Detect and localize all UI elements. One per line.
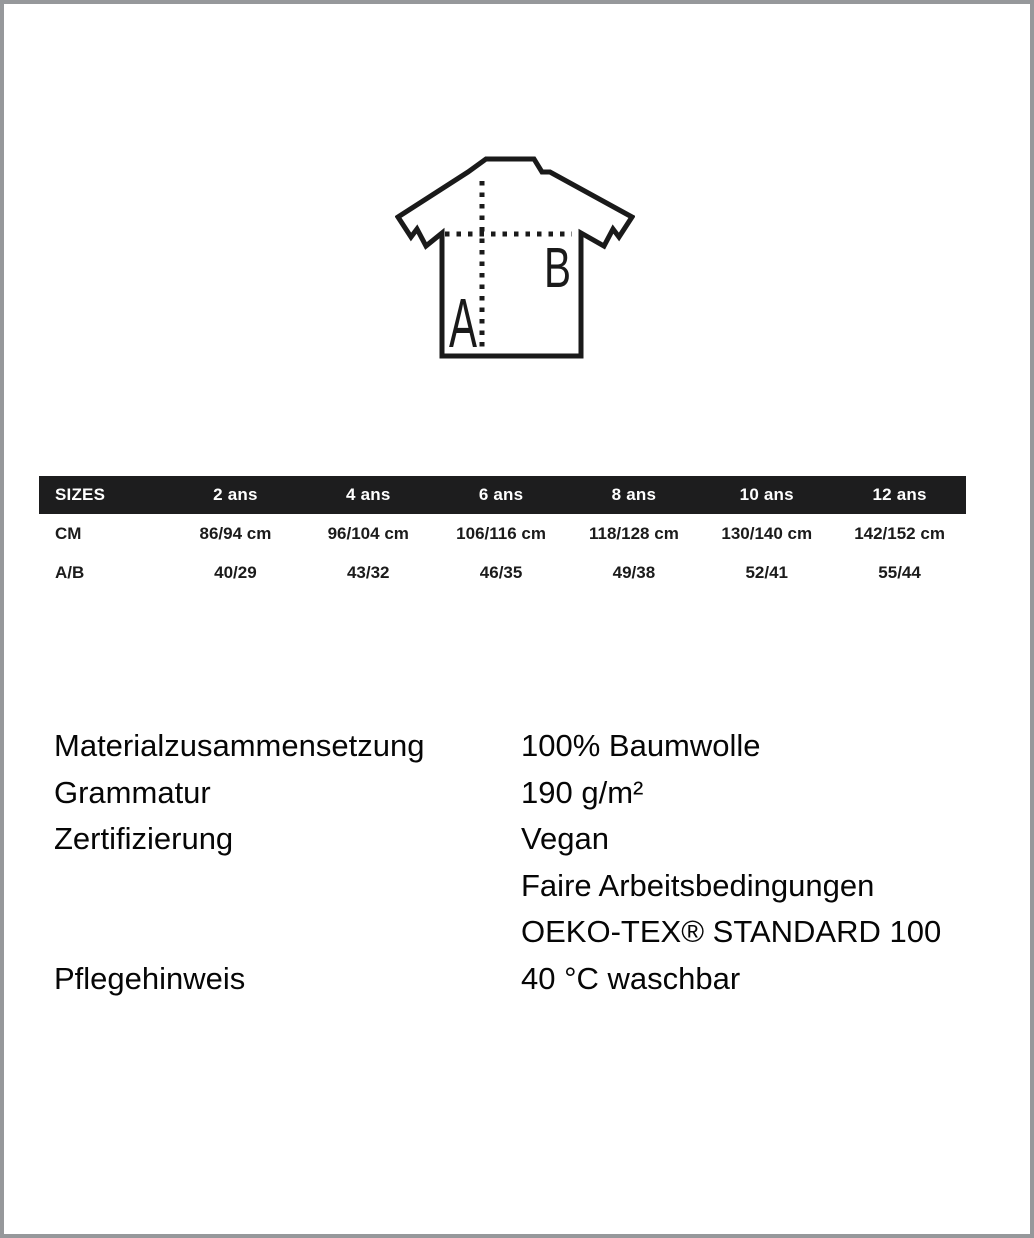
info-label-pflegehinweis: Pflegehinweis [54, 956, 521, 1003]
size-table-row-ab-label: A/B [39, 553, 169, 592]
size-table-cell-ab: 52/41 [700, 553, 833, 592]
size-table-cell-ab: 43/32 [302, 553, 435, 592]
size-table-header-8ans: 8 ans [567, 476, 700, 514]
measurement-label-b: B [544, 236, 571, 300]
size-table-cell-ab: 40/29 [169, 553, 302, 592]
measurement-label-a: A [449, 284, 477, 360]
size-table-cell-cm: 118/128 cm [567, 514, 700, 553]
tshirt-measurement-diagram: A B [395, 155, 635, 360]
size-table-header-2ans: 2 ans [169, 476, 302, 514]
info-label-grammatur: Grammatur [54, 770, 521, 817]
size-table-cell-ab: 46/35 [435, 553, 568, 592]
product-info-section: Materialzusammensetzung 100% Baumwolle G… [54, 723, 984, 1002]
info-label-zertifizierung: Zertifizierung [54, 816, 521, 863]
size-table-header-10ans: 10 ans [700, 476, 833, 514]
size-table-header-6ans: 6 ans [435, 476, 568, 514]
size-table-header-12ans: 12 ans [833, 476, 966, 514]
size-table-row-cm-label: CM [39, 514, 169, 553]
size-table-cell-ab: 49/38 [567, 553, 700, 592]
tshirt-outline-icon [398, 159, 632, 356]
info-value-line: 190 g/m² [521, 770, 984, 817]
info-value-grammatur: 190 g/m² [521, 770, 984, 817]
size-table-header-4ans: 4 ans [302, 476, 435, 514]
size-table-cell-cm: 106/116 cm [435, 514, 568, 553]
size-table-cell-cm: 96/104 cm [302, 514, 435, 553]
info-value-line: Vegan [521, 816, 984, 863]
info-value-material: 100% Baumwolle [521, 723, 984, 770]
size-table: SIZES 2 ans 4 ans 6 ans 8 ans 10 ans 12 … [39, 476, 966, 592]
info-value-line: Faire Arbeitsbedingungen [521, 863, 984, 910]
info-value-line: OEKO-TEX® STANDARD 100 [521, 909, 984, 956]
size-table-header-sizes: SIZES [39, 476, 169, 514]
size-guide-sheet: A B SIZES 2 ans 4 ans 6 ans 8 ans 10 ans… [0, 0, 1034, 1238]
size-table-cell-ab: 55/44 [833, 553, 966, 592]
size-table-cell-cm: 86/94 cm [169, 514, 302, 553]
info-label-material: Materialzusammensetzung [54, 723, 521, 770]
info-value-line: 40 °C waschbar [521, 956, 984, 1003]
size-table-cell-cm: 130/140 cm [700, 514, 833, 553]
size-table-cell-cm: 142/152 cm [833, 514, 966, 553]
info-value-line: 100% Baumwolle [521, 723, 984, 770]
info-value-zertifizierung: Vegan Faire Arbeitsbedingungen OEKO-TEX®… [521, 816, 984, 956]
info-value-pflegehinweis: 40 °C waschbar [521, 956, 984, 1003]
